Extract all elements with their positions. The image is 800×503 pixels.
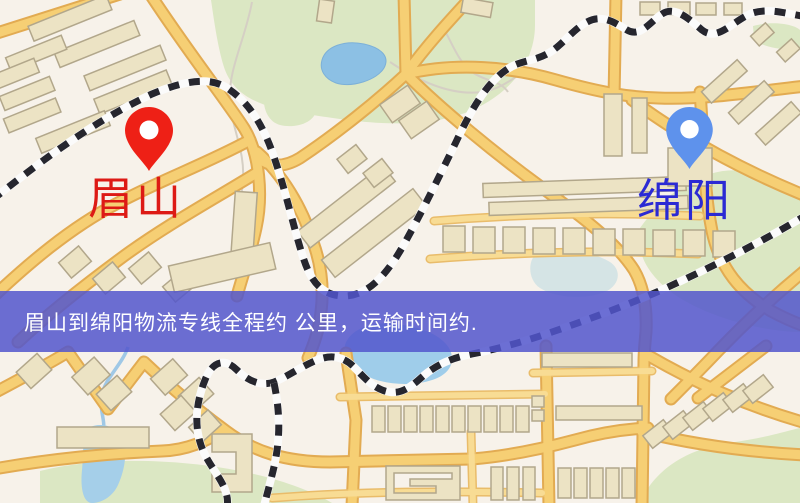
location-pin-icon: [663, 106, 716, 170]
map-view: 眉山到绵阳物流专线全程约 公里，运输时间约. 眉山 绵阳: [0, 0, 800, 503]
map-canvas: [0, 0, 800, 503]
pin-hole: [680, 120, 698, 138]
meishan-label: 眉山: [88, 176, 184, 221]
route-info-text: 眉山到绵阳物流专线全程约 公里，运输时间约.: [24, 307, 478, 337]
mianyang-label: 绵阳: [637, 178, 733, 223]
route-info-banner: 眉山到绵阳物流专线全程约 公里，运输时间约.: [0, 291, 800, 352]
mianyang-marker[interactable]: [663, 106, 716, 170]
meishan-marker[interactable]: [122, 106, 176, 172]
location-pin-icon: [122, 106, 176, 172]
pin-hole: [140, 121, 159, 140]
